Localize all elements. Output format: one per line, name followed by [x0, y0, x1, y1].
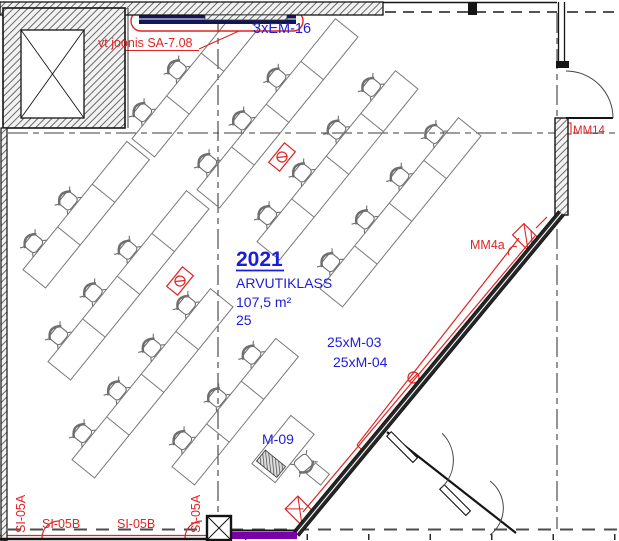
room-number: 2021: [236, 248, 283, 271]
room-seats: 25: [236, 312, 252, 328]
duct-b-left-label: SI-05B: [42, 517, 80, 531]
room-name: ARVUTIKLASS: [236, 275, 332, 291]
shaft-column: [3, 8, 128, 128]
printer-label: M-09: [262, 431, 294, 447]
mm14-label: MM14: [573, 125, 606, 137]
room-area: 107,5 m²: [236, 294, 292, 310]
duct-b-right-label: SI-05B: [117, 517, 155, 531]
monitors-a-label: 25xM-03: [327, 334, 382, 350]
monitors-b-label: 25xM-04: [333, 354, 388, 370]
floor-plan-drawing: vt joonis SA-7.08 3xEM-16 2021 ARVUTIKLA…: [0, 0, 619, 541]
power-label: 3xEM-16: [253, 21, 311, 37]
cable-note-label: vt joonis SA-7.08: [98, 36, 193, 50]
door-jamb-top: [556, 61, 569, 68]
floor-plan-page: vt joonis SA-7.08 3xEM-16 2021 ARVUTIKLA…: [0, 0, 619, 541]
wall-left: [1, 128, 7, 541]
duct-a-right-label: SI-05A: [189, 494, 203, 533]
mm4a-label: MM4a: [470, 238, 505, 252]
wall-top-ledge: [205, 15, 287, 20]
highlight-purple-wall: [229, 532, 297, 539]
wall-top-tick: [468, 2, 477, 15]
duct-a-left-label: SI-05A: [14, 494, 28, 533]
wall-right-block: [555, 118, 568, 215]
